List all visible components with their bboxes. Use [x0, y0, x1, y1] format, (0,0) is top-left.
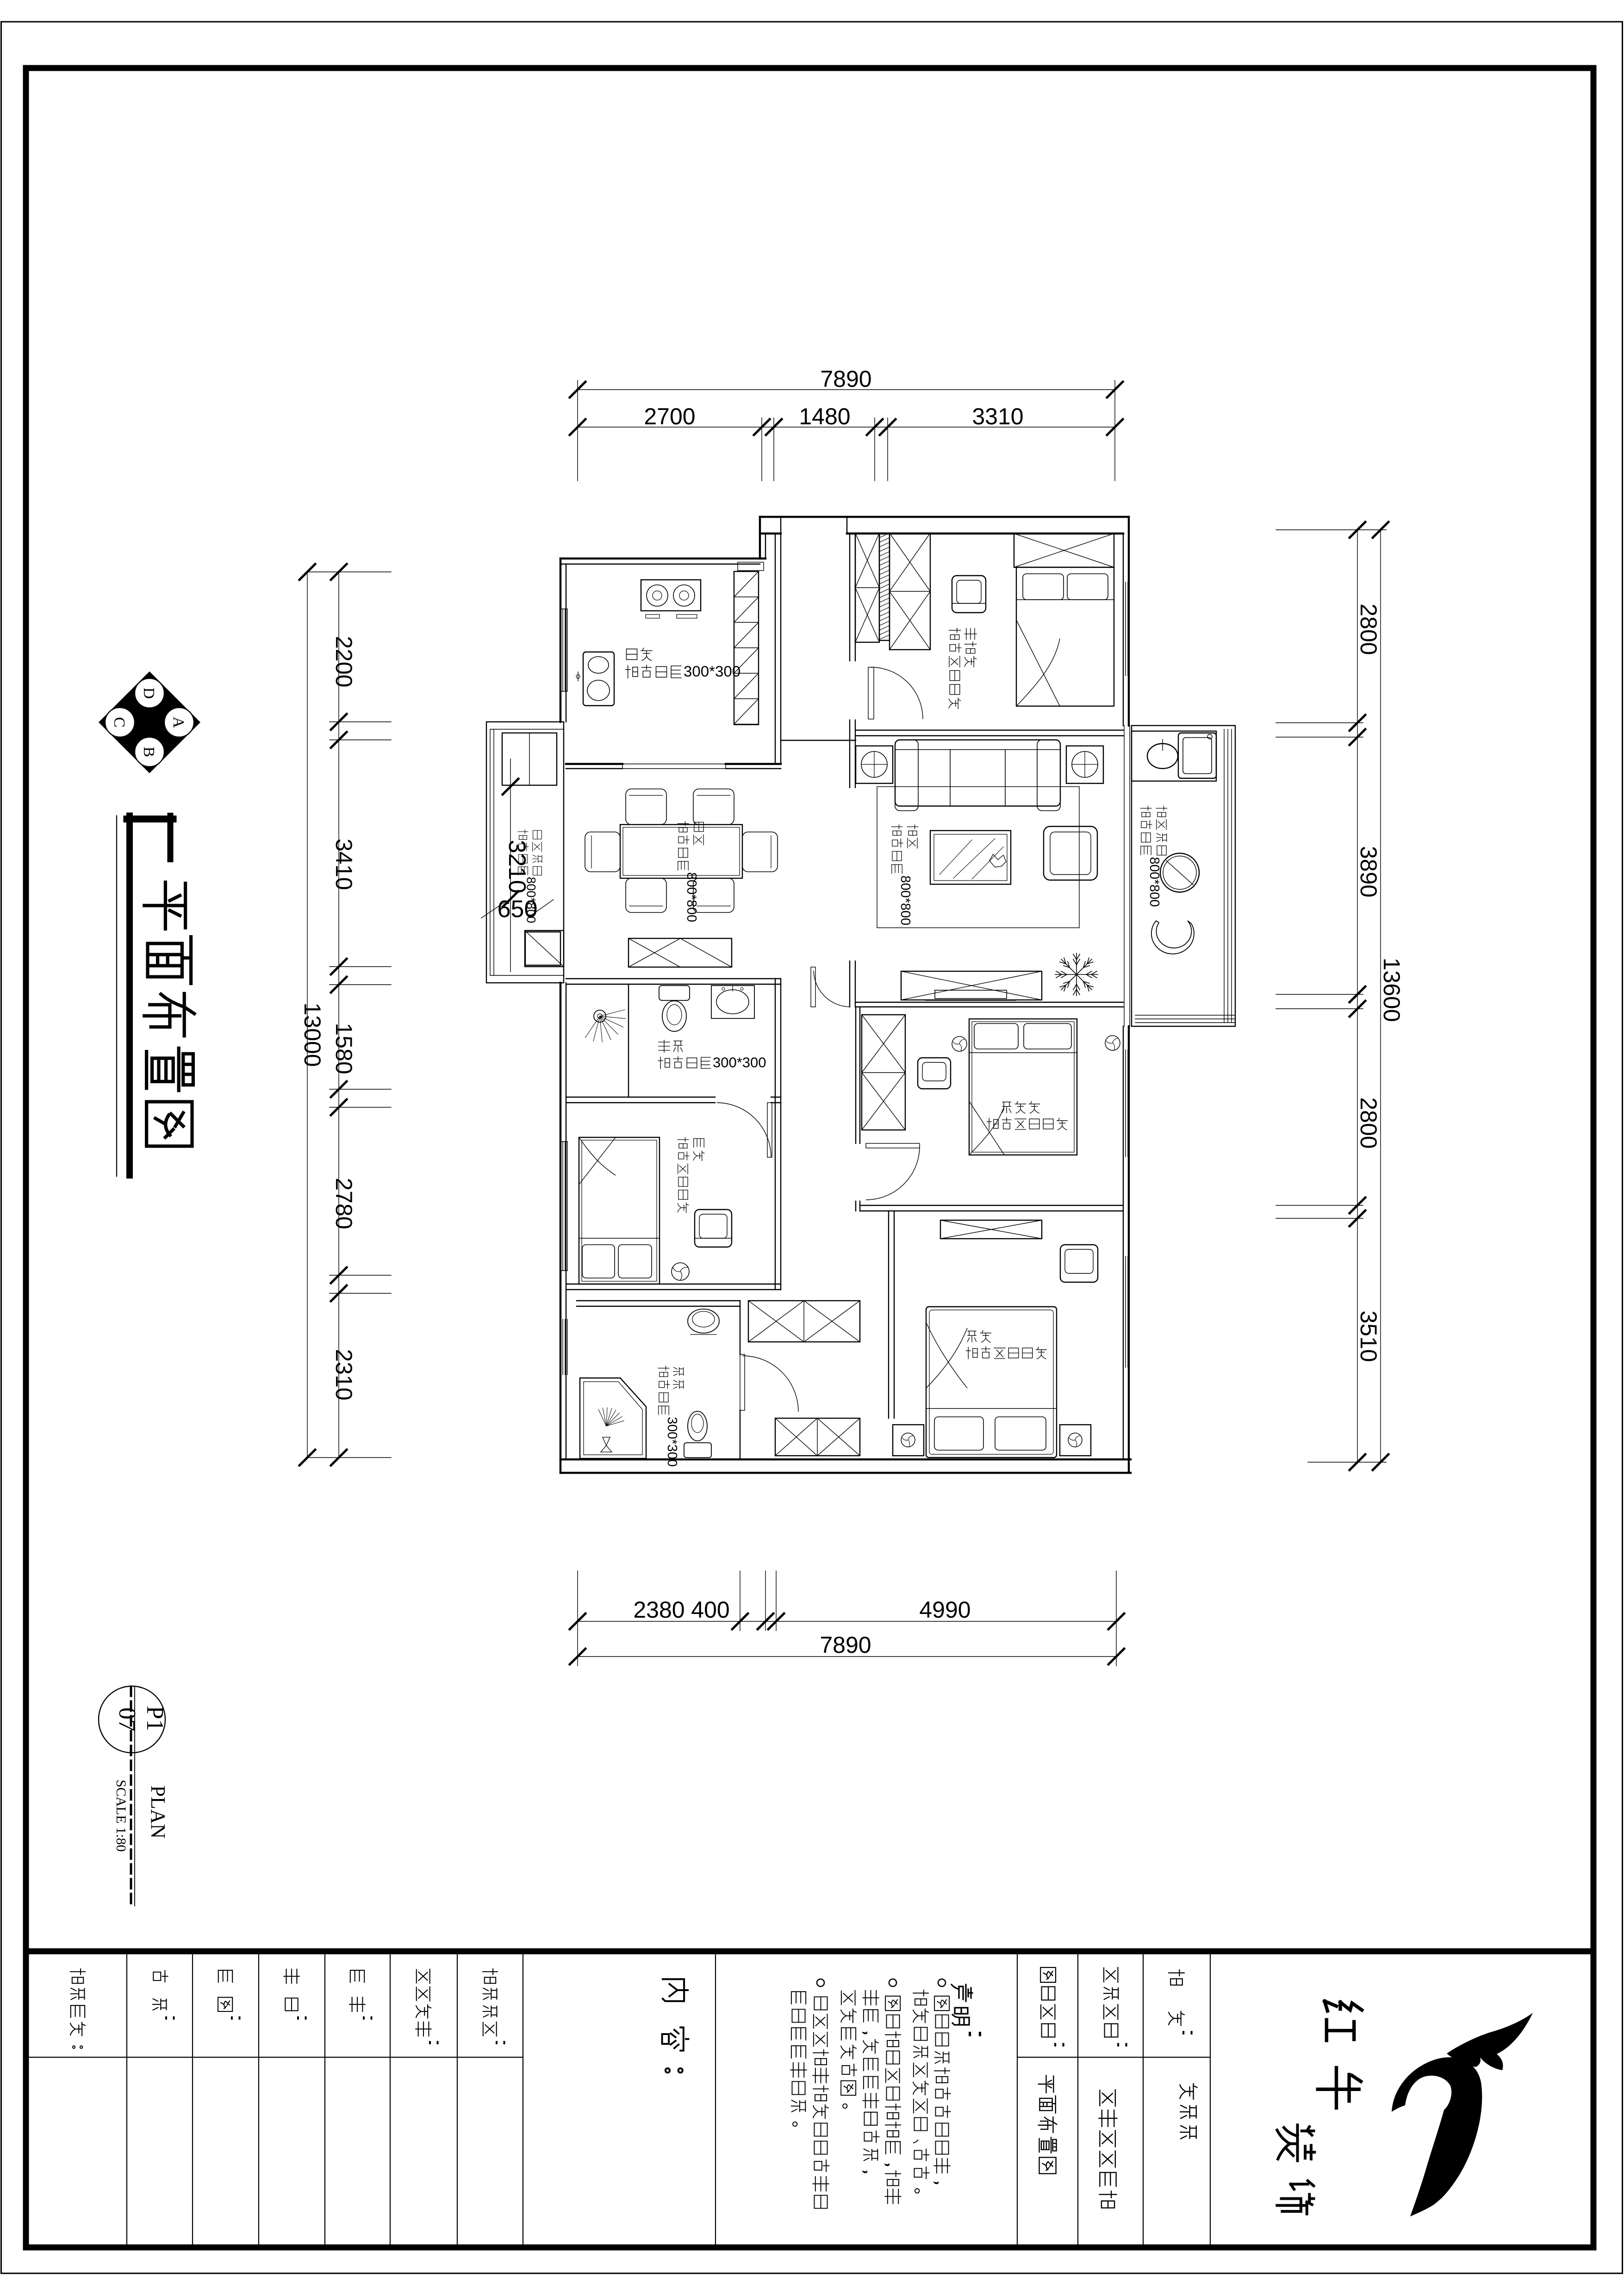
svg-text:800*800: 800*800	[524, 877, 538, 923]
svg-text::: :	[161, 2013, 181, 2023]
svg-text:3310: 3310	[972, 403, 1023, 429]
svg-text:800*800: 800*800	[684, 872, 699, 922]
svg-text:400: 400	[691, 1597, 729, 1623]
svg-text::: :	[1113, 2040, 1134, 2050]
svg-text:D: D	[140, 688, 157, 699]
svg-text:2800: 2800	[1356, 1097, 1381, 1148]
svg-text:2780: 2780	[331, 1178, 357, 1229]
svg-text:1580: 1580	[331, 1023, 357, 1074]
svg-text::: :	[1050, 2040, 1071, 2050]
svg-text:13000: 13000	[299, 1002, 325, 1067]
svg-text::: :	[227, 2013, 247, 2023]
svg-text:300*300: 300*300	[684, 663, 740, 680]
svg-text::: :	[293, 2013, 313, 2023]
svg-text:300*300: 300*300	[713, 1055, 766, 1071]
svg-text:PLAN: PLAN	[147, 1786, 169, 1839]
svg-text:2380: 2380	[633, 1597, 684, 1623]
svg-text:3890: 3890	[1356, 846, 1381, 897]
svg-text:1480: 1480	[799, 403, 850, 429]
svg-text:2200: 2200	[331, 636, 357, 687]
svg-text:B: B	[140, 747, 157, 757]
svg-text:P1: P1	[142, 1706, 168, 1731]
svg-text::: :	[359, 2013, 379, 2023]
svg-text::: :	[492, 2038, 511, 2048]
svg-text:300*300: 300*300	[665, 1417, 679, 1467]
svg-text:SCALE 1:80: SCALE 1:80	[113, 1780, 129, 1852]
svg-text:2800: 2800	[1356, 603, 1381, 655]
svg-text:800*800: 800*800	[1147, 857, 1162, 907]
svg-text:800*800: 800*800	[898, 875, 913, 925]
svg-text::: :	[964, 2028, 990, 2041]
svg-text:C: C	[111, 717, 128, 728]
svg-text:07: 07	[114, 1707, 140, 1731]
svg-text::: :	[425, 2038, 445, 2048]
svg-text:2310: 2310	[331, 1349, 357, 1400]
svg-text:3410: 3410	[331, 838, 357, 890]
svg-text:2700: 2700	[644, 403, 695, 429]
svg-text:4990: 4990	[919, 1597, 971, 1623]
svg-text::: :	[1178, 2028, 1200, 2038]
svg-text:7890: 7890	[820, 1632, 871, 1658]
svg-text:A: A	[170, 717, 187, 728]
svg-text:7890: 7890	[820, 366, 871, 392]
svg-text:13600: 13600	[1379, 957, 1405, 1022]
svg-text:3510: 3510	[1356, 1310, 1381, 1362]
